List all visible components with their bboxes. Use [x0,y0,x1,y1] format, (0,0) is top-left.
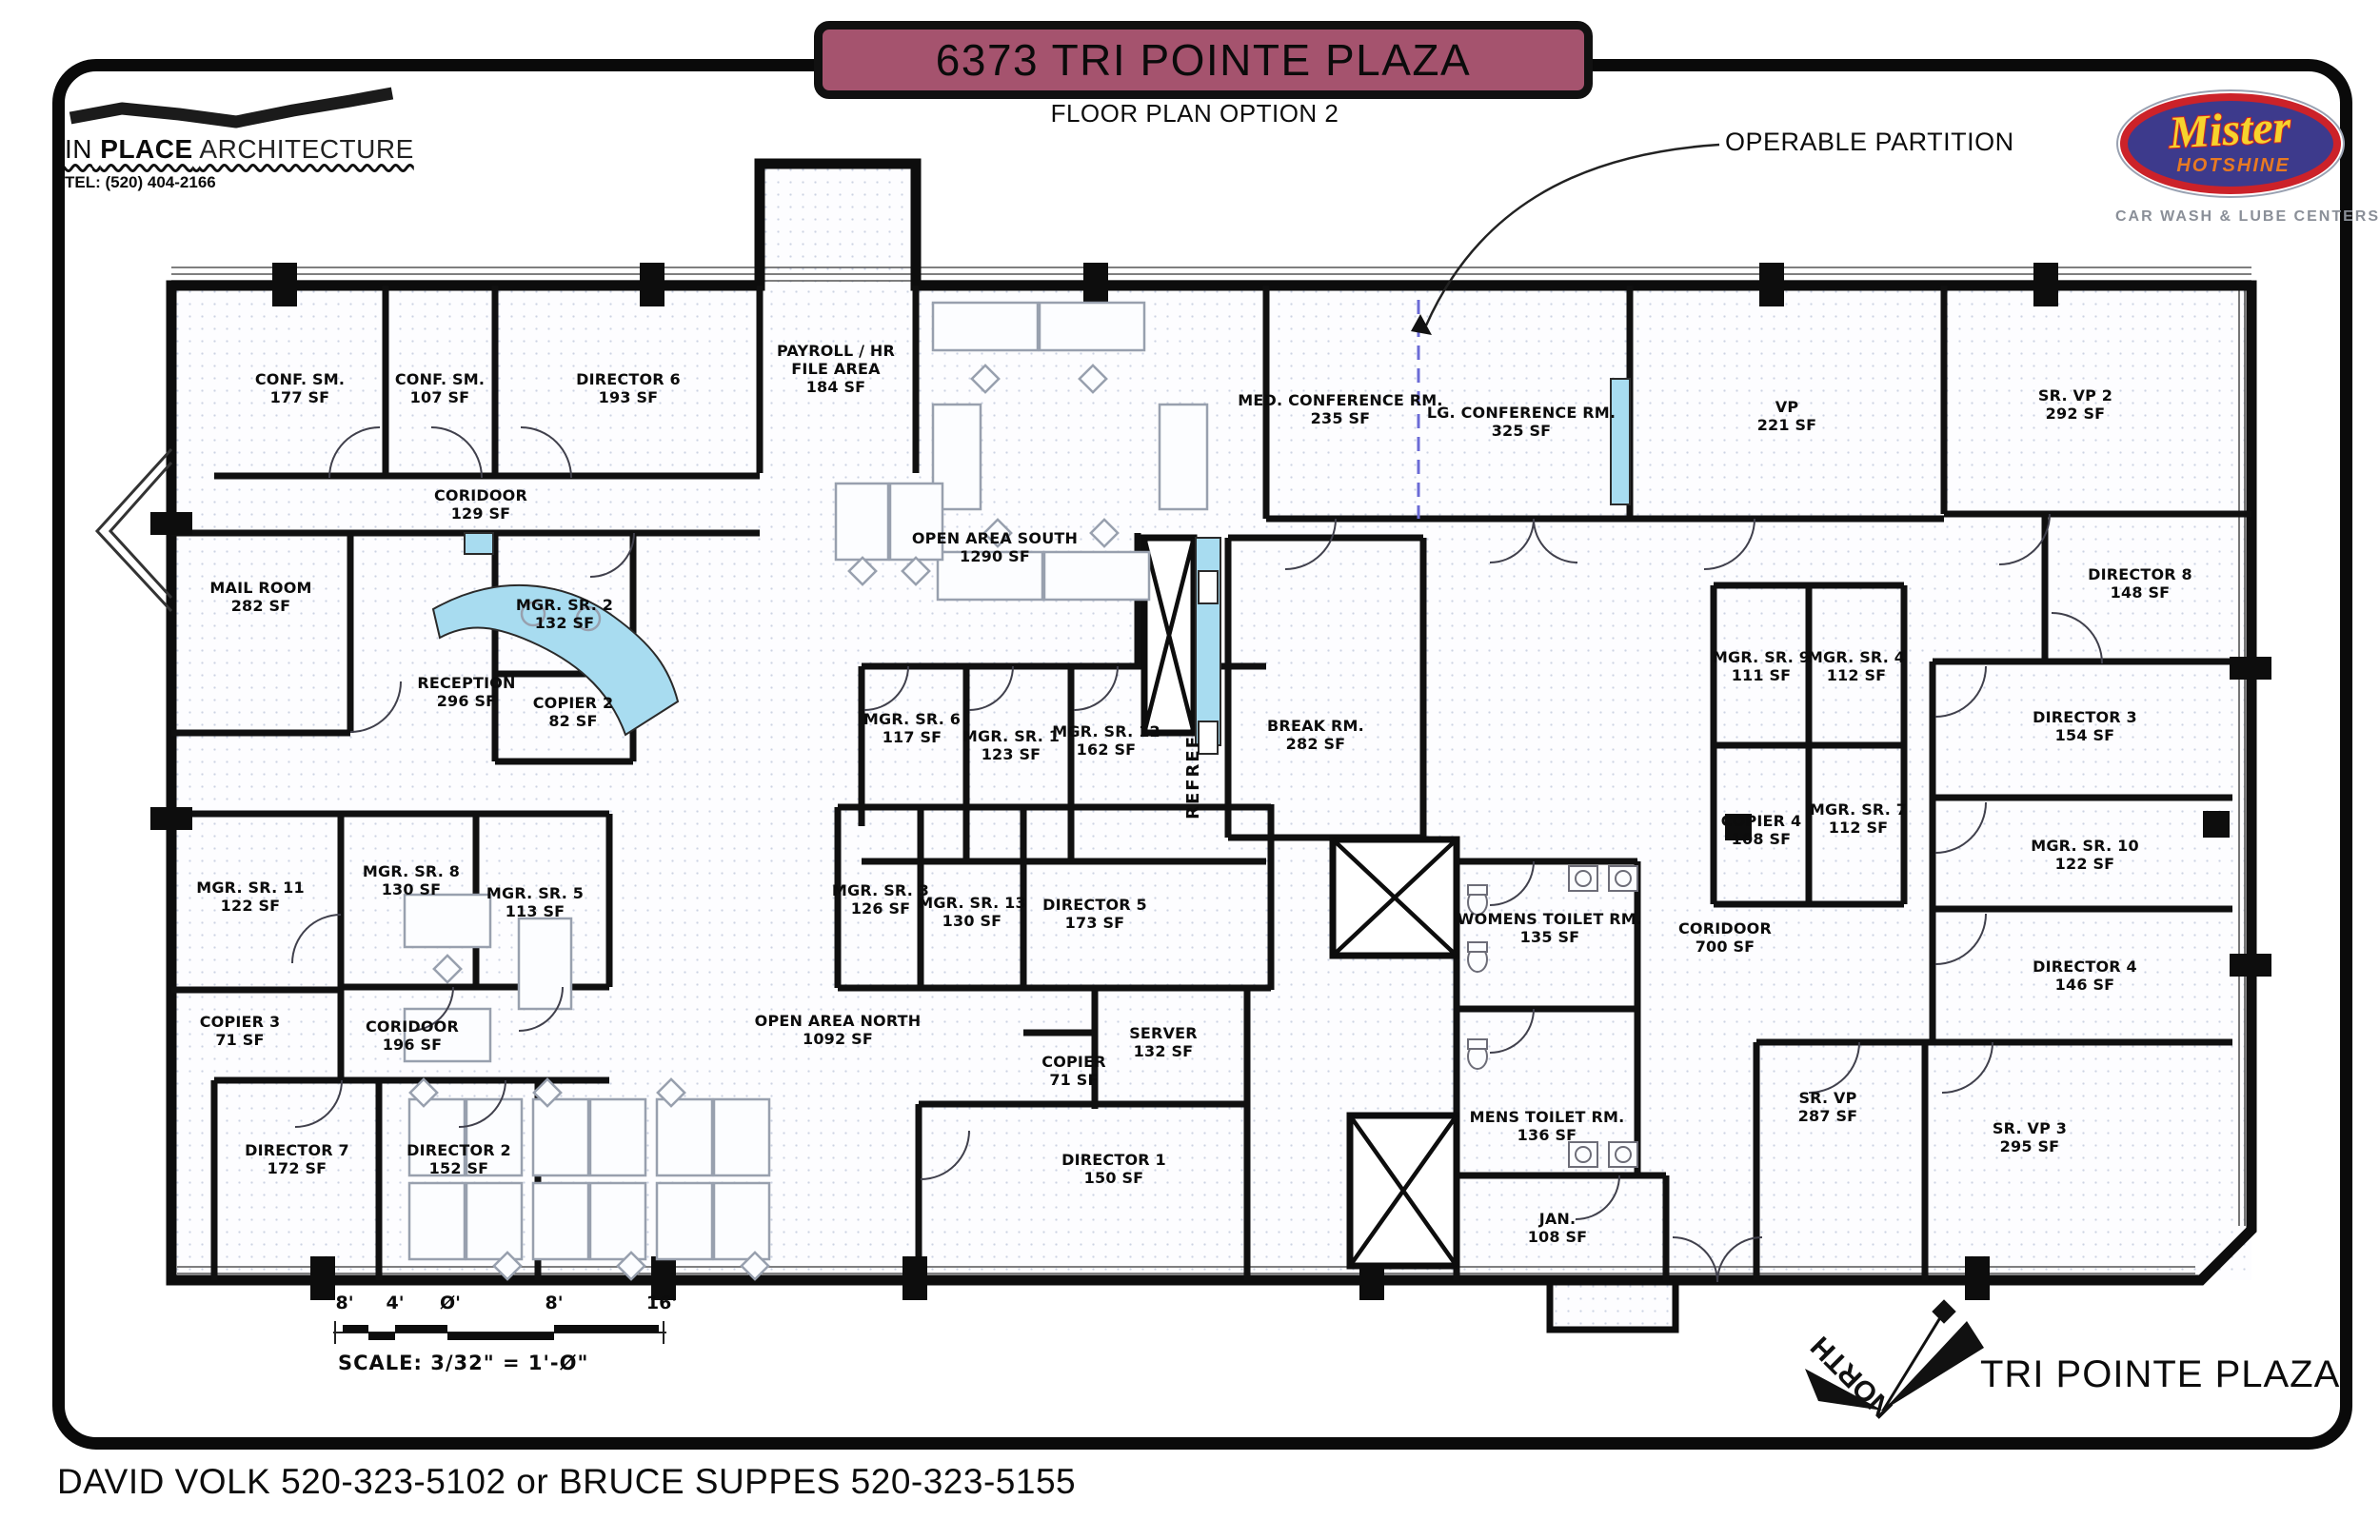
room-label-director-5: DIRECTOR 5173 SF [1042,896,1147,932]
room-label-director-4: DIRECTOR 4146 SF [2033,958,2137,994]
room-name: SR. VP 2 [2038,386,2112,405]
room-name: SR. VP 3 [1993,1119,2067,1137]
room-label-copier-3: COPIER 371 SF [200,1013,281,1049]
room-label-director-6: DIRECTOR 6193 SF [576,370,681,406]
room-name: OPEN AREA SOUTH [912,529,1078,547]
room-name: MGR. SR. 5 [486,884,584,902]
room-label-director-2: DIRECTOR 2152 SF [407,1141,511,1177]
room-name: CORIDOOR [366,1017,459,1036]
room-area: 235 SF [1238,409,1442,427]
room-area: 287 SF [1798,1107,1858,1125]
room-area: 132 SF [516,614,613,632]
room-label-break-rm: BREAK RM.282 SF [1267,717,1364,753]
room-label-director-3: DIRECTOR 3154 SF [2033,708,2137,744]
north-arrow-icon: NORTH [1805,1299,1984,1424]
room-name: MGR. SR. 3 [832,881,929,899]
room-label-sr-vp-2: SR. VP 2292 SF [2038,386,2112,423]
room-label-mgr-sr-1: MGR. SR. 1123 SF [962,727,1060,763]
contact-line: DAVID VOLK 520-323-5102 or BRUCE SUPPES … [57,1462,1076,1502]
operable-partition-line [1411,145,1719,519]
room-area: 123 SF [962,745,1060,763]
room-name: CORIDOOR [434,486,527,504]
floor-plan-page: IN PLACE ARCHITECTURE TEL: (520) 404-216… [0,0,2380,1540]
room-label-mens-toilet: MENS TOILET RM.136 SF [1470,1108,1625,1144]
scale-bar [333,1321,666,1344]
room-area: 130 SF [918,912,1026,930]
room-name: MGR. SR. 12 [1052,722,1160,740]
room-label-mgr-sr-2: MGR. SR. 2132 SF [516,596,613,632]
room-name: MGR. SR. 13 [918,894,1026,912]
room-label-conf-sm-2: CONF. SM.107 SF [395,370,485,406]
room-area: 296 SF [417,692,515,710]
room-label-jan: JAN.108 SF [1528,1210,1588,1246]
room-name: MGR. SR. 1 [962,727,1060,745]
room-area: 292 SF [2038,405,2112,423]
room-label-mgr-sr-11: MGR. SR. 11122 SF [196,879,305,915]
room-name: RECEPTION [417,674,515,692]
shafts [1144,538,1457,1266]
room-area: 150 SF [1061,1169,1166,1187]
room-area: 162 SF [1052,740,1160,759]
room-area: 1290 SF [912,547,1078,565]
room-name: DIRECTOR 3 [2033,708,2137,726]
room-name: DIRECTOR 4 [2033,958,2137,976]
room-label-sr-vp-3: SR. VP 3295 SF [1993,1119,2067,1155]
room-label-mgr-sr-10: MGR. SR. 10122 SF [2031,837,2139,873]
room-name: JAN. [1528,1210,1588,1228]
room-area: 148 SF [2088,583,2192,602]
room-area: 221 SF [1757,416,1817,434]
room-label-mail-room: MAIL ROOM282 SF [209,579,311,615]
scale-tick: 16' [646,1293,677,1313]
room-area: 295 SF [1993,1137,2067,1155]
room-name: CONF. SM. [255,370,345,388]
refrigerator-label: REFREF [1183,735,1203,819]
room-name: COPIER 4 [1721,812,1802,830]
room-label-director-1: DIRECTOR 1150 SF [1061,1151,1166,1187]
room-name: SERVER [1129,1024,1198,1042]
room-name: MGR. SR. 2 [516,596,613,614]
scale-tick: Ø' [440,1293,461,1313]
room-label-sr-vp: SR. VP287 SF [1798,1089,1858,1125]
room-name: COPIER [1041,1053,1105,1071]
room-area: 173 SF [1042,914,1147,932]
room-label-reception: RECEPTION296 SF [417,674,515,710]
room-area: 130 SF [363,880,460,898]
room-area: 282 SF [1267,735,1364,753]
room-name: MGR. SR. 6 [863,710,961,728]
room-label-med-conference: MED. CONFERENCE RM.235 SF [1238,391,1442,427]
room-area: 71 SF [200,1031,281,1049]
room-area: 112 SF [1808,666,1905,684]
room-name: MGR. SR. 9 [1713,648,1810,666]
room-area: 122 SF [196,897,305,915]
scale-text: SCALE: 3/32" = 1'-Ø" [338,1352,588,1374]
room-label-copier-4: COPIER 4108 SF [1721,812,1802,848]
room-name: VP [1757,398,1817,416]
room-label-open-area-south: OPEN AREA SOUTH1290 SF [912,529,1078,565]
room-label-mgr-sr-13: MGR. SR. 13130 SF [918,894,1026,930]
room-name: DIRECTOR 8 [2088,565,2192,583]
room-label-mgr-sr-3: MGR. SR. 3126 SF [832,881,929,918]
room-name: MAIL ROOM [209,579,311,597]
scale-tick: 8' [545,1293,563,1313]
room-area: 71 SF [1041,1071,1105,1089]
room-name: DIRECTOR 1 [1061,1151,1166,1169]
room-name: LG. CONFERENCE RM. [1427,404,1616,422]
room-label-vp: VP221 SF [1757,398,1817,434]
room-area: 136 SF [1470,1126,1625,1144]
room-area: 126 SF [832,899,929,918]
scale-tick: 8' [335,1293,353,1313]
room-name: COPIER 2 [533,694,614,712]
room-area: 193 SF [576,388,681,406]
room-area: 282 SF [209,597,311,615]
room-area: 177 SF [255,388,345,406]
room-name: DIRECTOR 5 [1042,896,1147,914]
room-area: 122 SF [2031,855,2139,873]
room-area: 152 SF [407,1159,511,1177]
room-area: 111 SF [1713,666,1810,684]
room-name: SR. VP [1798,1089,1858,1107]
room-area: 325 SF [1427,422,1616,440]
room-name: DIRECTOR 2 [407,1141,511,1159]
room-label-coridoor-196: CORIDOOR196 SF [366,1017,459,1054]
room-area: 117 SF [863,728,961,746]
room-area: 146 SF [2033,976,2137,994]
room-label-director-8: DIRECTOR 8148 SF [2088,565,2192,602]
scale-tick: 4' [386,1293,404,1313]
room-label-payroll: PAYROLL / HR FILE AREA184 SF [764,342,907,397]
room-label-coridoor-700: CORIDOOR700 SF [1678,919,1772,956]
room-name: PAYROLL / HR FILE AREA [764,342,907,378]
room-name: MGR. SR. 4 [1808,648,1905,666]
room-label-copier: COPIER71 SF [1041,1053,1105,1089]
room-name: OPEN AREA NORTH [755,1012,922,1030]
room-area: 172 SF [245,1159,349,1177]
room-area: 112 SF [1810,819,1907,837]
room-label-lg-conference: LG. CONFERENCE RM.325 SF [1427,404,1616,440]
room-area: 700 SF [1678,938,1772,956]
room-name: MGR. SR. 10 [2031,837,2139,855]
room-label-mgr-sr-5: MGR. SR. 5113 SF [486,884,584,920]
room-area: 184 SF [764,379,907,397]
room-label-director-7: DIRECTOR 7172 SF [245,1141,349,1177]
room-label-mgr-sr-4: MGR. SR. 4112 SF [1808,648,1905,684]
room-name: WOMENS TOILET RM. [1458,910,1642,928]
room-name: MGR. SR. 11 [196,879,305,897]
room-area: 132 SF [1129,1042,1198,1060]
room-area: 1092 SF [755,1030,922,1048]
room-name: DIRECTOR 6 [576,370,681,388]
room-label-coridoor-129: CORIDOOR129 SF [434,486,527,523]
room-label-copier-2: COPIER 282 SF [533,694,614,730]
room-name: CORIDOOR [1678,919,1772,938]
room-name: COPIER 3 [200,1013,281,1031]
plaza-footer-label: TRI POINTE PLAZA [1980,1353,2313,1396]
room-name: BREAK RM. [1267,717,1364,735]
room-area: 108 SF [1721,830,1802,848]
room-label-mgr-sr-7: MGR. SR. 7112 SF [1810,800,1907,837]
room-area: 108 SF [1528,1228,1588,1246]
room-label-mgr-sr-8: MGR. SR. 8130 SF [363,862,460,898]
room-area: 113 SF [486,902,584,920]
room-label-open-area-north: OPEN AREA NORTH1092 SF [755,1012,922,1048]
room-label-mgr-sr-12: MGR. SR. 12162 SF [1052,722,1160,759]
room-name: MED. CONFERENCE RM. [1238,391,1442,409]
room-label-server: SERVER132 SF [1129,1024,1198,1060]
room-area: 196 SF [366,1036,459,1054]
room-label-womens-toilet: WOMENS TOILET RM.135 SF [1458,910,1642,946]
room-area: 107 SF [395,388,485,406]
room-name: MENS TOILET RM. [1470,1108,1625,1126]
room-name: MGR. SR. 7 [1810,800,1907,819]
room-name: CONF. SM. [395,370,485,388]
room-area: 129 SF [434,504,527,523]
room-label-mgr-sr-6: MGR. SR. 6117 SF [863,710,961,746]
room-area: 82 SF [533,712,614,730]
room-name: DIRECTOR 7 [245,1141,349,1159]
room-area: 154 SF [2033,726,2137,744]
room-label-mgr-sr-9: MGR. SR. 9111 SF [1713,648,1810,684]
room-area: 135 SF [1458,928,1642,946]
room-label-conf-sm-1: CONF. SM.177 SF [255,370,345,406]
room-name: MGR. SR. 8 [363,862,460,880]
